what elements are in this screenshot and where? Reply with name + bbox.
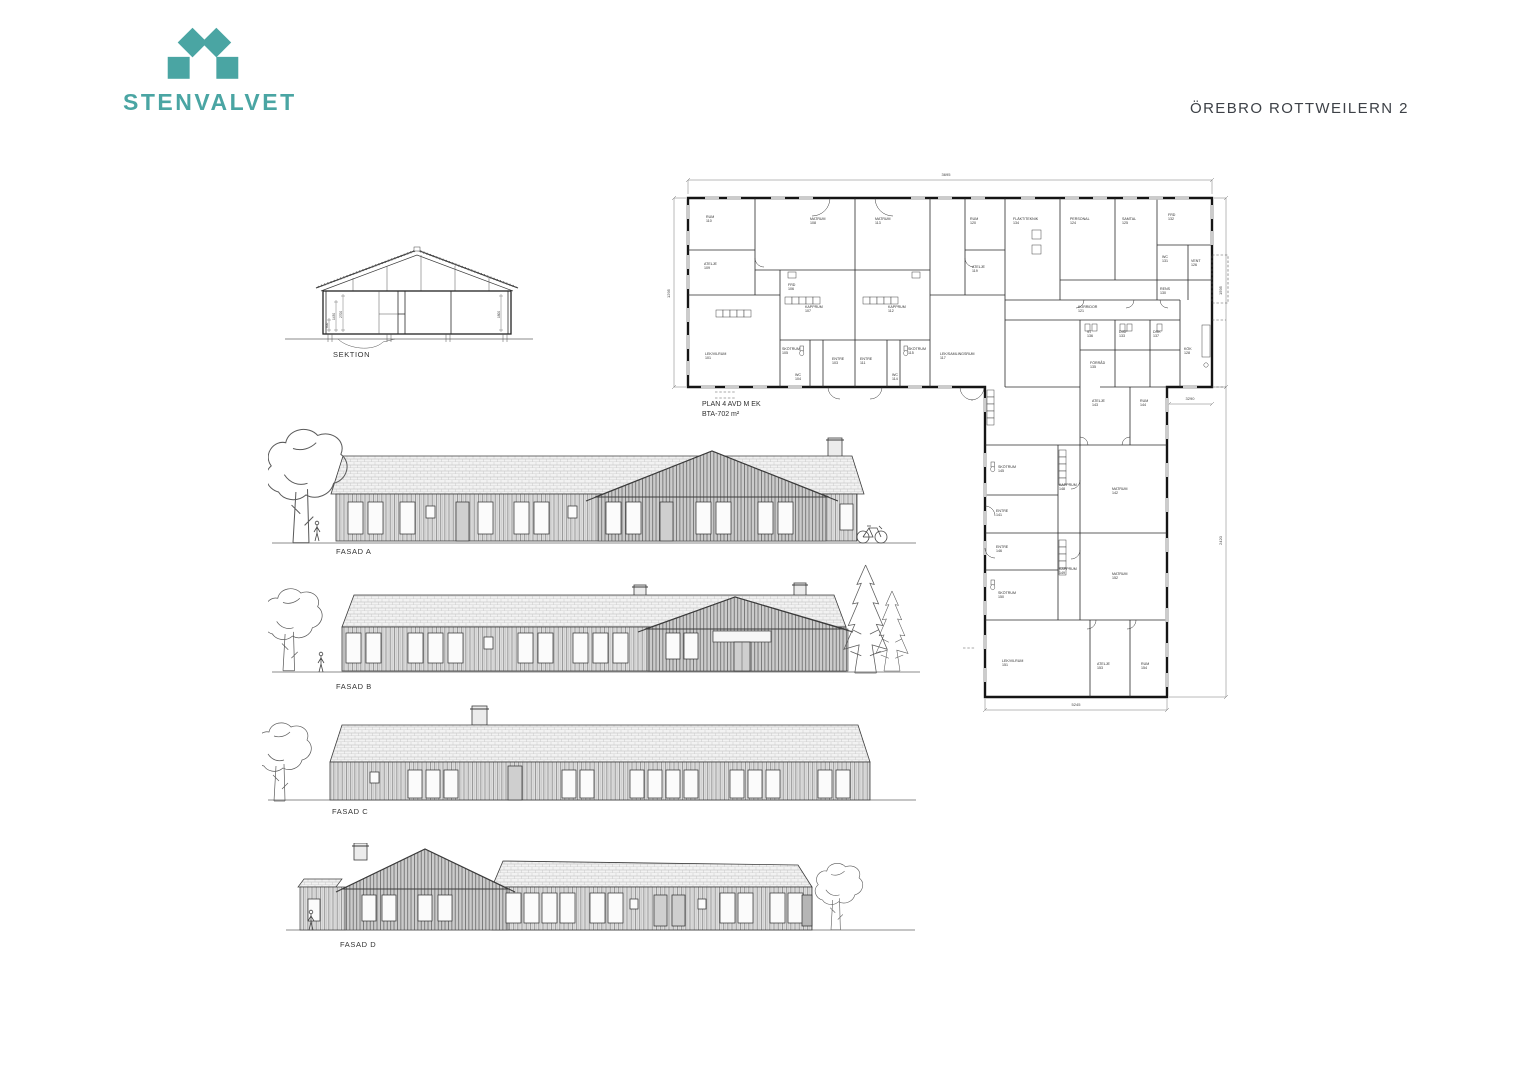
logo-square-right	[216, 57, 238, 79]
svg-text:1800: 1800	[497, 311, 501, 318]
fasad-b-label: FASAD B	[336, 682, 372, 691]
brand-wordmark: STENVALVET	[123, 89, 283, 116]
room-label: WC114	[892, 373, 898, 381]
logo-square-left	[168, 57, 190, 79]
project-title: ÖREBRO ROTTWEILERN 2	[1190, 100, 1409, 117]
sektion-label: SEKTION	[333, 350, 370, 359]
fasad-a-drawing: FASAD A	[268, 402, 920, 557]
svg-text:1430: 1430	[332, 313, 336, 320]
stenvalvet-logo-icon	[162, 26, 244, 82]
room-label: WC131	[1162, 255, 1168, 263]
plan-dim-wing-top: 3290	[1186, 396, 1196, 401]
svg-text:600: 600	[325, 322, 329, 328]
fasad-d-drawing: FASAD D	[278, 843, 923, 955]
plan-dim-right-wing: 2420	[1218, 535, 1223, 545]
plan-dim-left: 1295	[666, 288, 671, 298]
fasad-a-label: FASAD A	[336, 547, 371, 556]
fasad-d-label: FASAD D	[340, 940, 376, 949]
plan-dim-top: 3695	[942, 172, 952, 177]
logo-diamond-right	[202, 28, 232, 58]
svg-text:2700: 2700	[339, 311, 343, 318]
room-label: WC104	[795, 373, 801, 381]
drawing-sheet: { "brand": { "name": "STENVALVET", "colo…	[0, 0, 1532, 1080]
fasad-c-drawing: FASAD C	[262, 700, 922, 822]
plan-dim-right-band: 1595	[1218, 285, 1223, 295]
stenvalvet-brand: STENVALVET	[123, 26, 283, 116]
fasad-b-drawing: FASAD B	[268, 563, 928, 695]
fasad-c-label: FASAD C	[332, 807, 368, 816]
plan-dim-bottom: 5245	[1072, 702, 1082, 707]
sektion-drawing: 600 1430 2700 1800 SEKTION	[283, 236, 558, 371]
